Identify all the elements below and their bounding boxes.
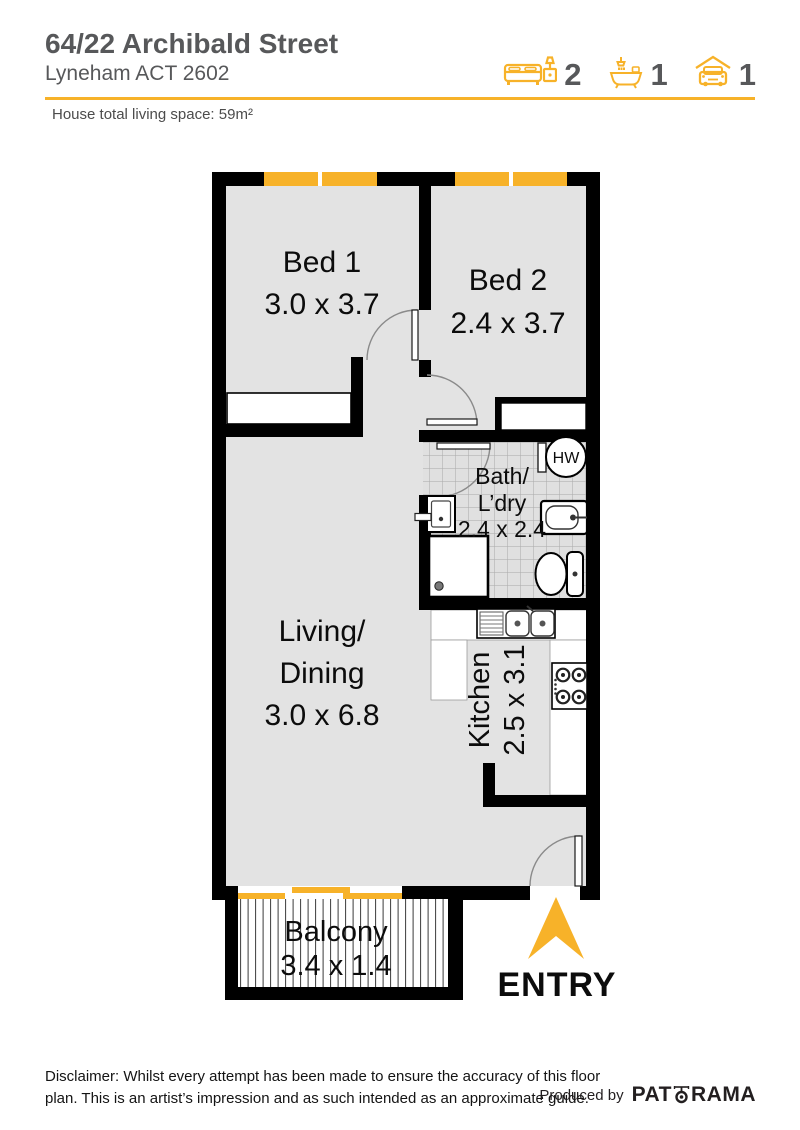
balcony-dims: 3.4 x 1.4 — [280, 950, 391, 982]
header-divider — [45, 97, 755, 100]
bath-dims: 2.4 x 2.4 — [458, 516, 546, 542]
entry-arrow-icon — [528, 897, 584, 959]
page-subtitle: Lyneham ACT 2602 — [45, 62, 229, 86]
brand-logo: PAT RAMA — [632, 1083, 756, 1107]
garage-stat: 1 — [694, 54, 756, 95]
bed1-door-leaf — [412, 310, 418, 360]
entry-label: ENTRY — [498, 966, 617, 1004]
bedrooms-count: 2 — [564, 59, 581, 90]
page-title: 64/22 Archibald Street — [45, 28, 338, 60]
kitchen-label: Kitchen — [464, 652, 496, 749]
kitchen-sink — [477, 606, 555, 638]
toilet — [536, 552, 584, 596]
bathrooms-count: 1 — [651, 59, 668, 90]
drone-icon — [673, 1084, 690, 1104]
produced-by-label: Produced by — [539, 1087, 623, 1104]
produced-by: Produced by PAT RAMA — [539, 1083, 756, 1107]
bed2-label: Bed 2 — [469, 264, 547, 297]
kitchen-dims: 2.5 x 3.1 — [499, 644, 531, 755]
bathtub — [541, 501, 587, 534]
bed2-wardrobe — [501, 403, 586, 430]
bedrooms-stat: 2 — [503, 54, 581, 95]
floor-plan: Bed 1 3.0 x 3.7 Bed 2 2.4 x 3.7 Bath/ L’… — [0, 0, 800, 1130]
living-space-note: House total living space: 59m² — [52, 106, 253, 123]
garage-count: 1 — [739, 59, 756, 90]
garage-icon — [694, 54, 732, 95]
disclaimer-line-1: Disclaimer: Whilst every attempt has bee… — [45, 1066, 600, 1088]
hw-pipe — [538, 443, 546, 472]
living-dims: 3.0 x 6.8 — [264, 699, 379, 732]
balcony-sliding-door — [238, 886, 402, 900]
cooktop — [552, 663, 587, 709]
disclaimer-line-2: plan. This is an artist’s impression and… — [45, 1088, 600, 1110]
property-stats: 2 1 — [503, 54, 756, 95]
floorplan-page: Bed 1 3.0 x 3.7 Bed 2 2.4 x 3.7 Bath/ L’… — [0, 0, 800, 1130]
bath-label-1: Bath/ — [475, 463, 529, 489]
brand-suffix: RAMA — [691, 1083, 756, 1107]
bed1-dims: 3.0 x 3.7 — [264, 288, 379, 321]
bed2-door-leaf — [427, 419, 477, 425]
bathrooms-stat: 1 — [608, 54, 668, 95]
brand-prefix: PAT — [632, 1083, 672, 1107]
living-label-1: Living/ — [279, 615, 366, 648]
bed1-wardrobe — [227, 393, 351, 424]
entry-door-leaf — [575, 836, 582, 886]
bath-icon — [608, 54, 644, 95]
balcony-label: Balcony — [284, 916, 388, 948]
hot-water-label: HW — [553, 450, 581, 467]
disclaimer: Disclaimer: Whilst every attempt has bee… — [45, 1066, 600, 1110]
living-label-2: Dining — [279, 657, 364, 690]
bed1-label: Bed 1 — [283, 246, 361, 279]
bed2-dims: 2.4 x 3.7 — [450, 307, 565, 340]
bath-label-2: L’dry — [478, 490, 527, 516]
shower — [429, 536, 488, 597]
bed-icon — [503, 54, 557, 95]
bath-door-leaf — [437, 443, 490, 449]
